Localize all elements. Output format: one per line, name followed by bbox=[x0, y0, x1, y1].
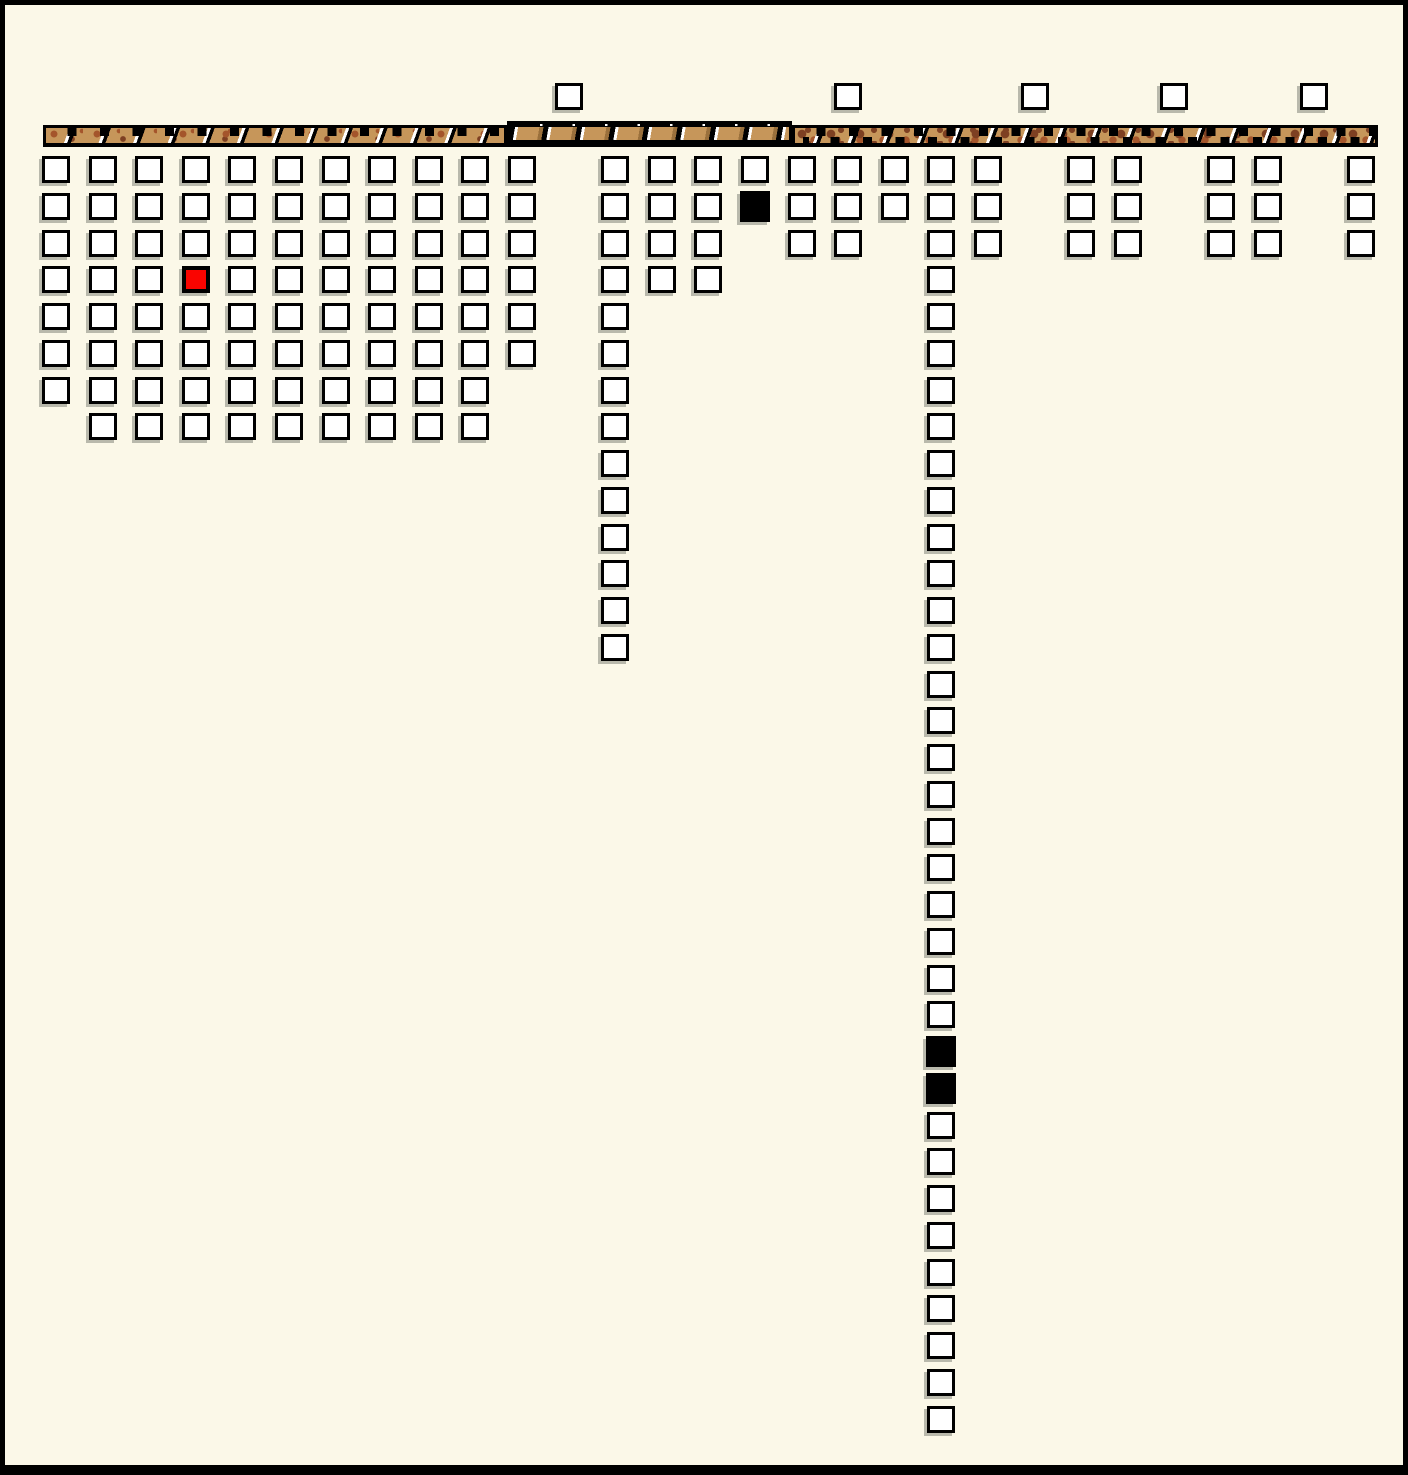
grid-square[interactable] bbox=[927, 744, 955, 771]
grid-square[interactable] bbox=[508, 193, 536, 220]
diagram-frame bbox=[0, 0, 1408, 1475]
grid-square[interactable] bbox=[927, 487, 955, 514]
beam-segment-right bbox=[792, 125, 1378, 147]
grid-square[interactable] bbox=[927, 266, 955, 293]
grid-square[interactable] bbox=[461, 413, 489, 440]
grid-square[interactable] bbox=[788, 193, 816, 220]
grid-square[interactable] bbox=[1254, 156, 1282, 183]
grid-square[interactable] bbox=[368, 156, 396, 183]
grid-square[interactable] bbox=[927, 377, 955, 404]
grid-square[interactable] bbox=[42, 193, 70, 220]
grid-square[interactable] bbox=[601, 450, 629, 477]
grid-square[interactable] bbox=[135, 303, 163, 330]
grid-square[interactable] bbox=[1207, 156, 1235, 183]
grid-square[interactable] bbox=[601, 524, 629, 551]
grid-square[interactable] bbox=[275, 193, 303, 220]
grid-square[interactable] bbox=[89, 193, 117, 220]
grid-square[interactable] bbox=[322, 413, 350, 440]
grid-square[interactable] bbox=[135, 230, 163, 257]
grid-square[interactable] bbox=[648, 230, 676, 257]
grid-square[interactable] bbox=[182, 340, 210, 367]
grid-square[interactable] bbox=[42, 230, 70, 257]
grid-square[interactable] bbox=[1207, 193, 1235, 220]
grid-square[interactable] bbox=[927, 671, 955, 698]
grid-square[interactable] bbox=[89, 266, 117, 293]
grid-square[interactable] bbox=[415, 377, 443, 404]
grid-square[interactable] bbox=[182, 193, 210, 220]
beam-tick-marks bbox=[510, 124, 789, 126]
grid-square[interactable] bbox=[89, 303, 117, 330]
red-square[interactable] bbox=[182, 266, 210, 293]
grid-square[interactable] bbox=[927, 230, 955, 257]
grid-square[interactable] bbox=[927, 1406, 955, 1433]
grid-square[interactable] bbox=[415, 193, 443, 220]
grid-square[interactable] bbox=[927, 781, 955, 808]
grid-square[interactable] bbox=[89, 340, 117, 367]
grid-square[interactable] bbox=[228, 156, 256, 183]
grid-square[interactable] bbox=[1254, 193, 1282, 220]
grid-square[interactable] bbox=[182, 303, 210, 330]
grid-square[interactable] bbox=[927, 891, 955, 918]
grid-square[interactable] bbox=[135, 266, 163, 293]
grid-square[interactable] bbox=[368, 230, 396, 257]
grid-square[interactable] bbox=[508, 156, 536, 183]
grid-square[interactable] bbox=[89, 413, 117, 440]
grid-square[interactable] bbox=[322, 156, 350, 183]
grid-square[interactable] bbox=[648, 266, 676, 293]
grid-square[interactable] bbox=[601, 597, 629, 624]
grid-square[interactable] bbox=[461, 266, 489, 293]
black-square[interactable] bbox=[926, 1036, 956, 1067]
grid-square[interactable] bbox=[461, 156, 489, 183]
grid-square[interactable] bbox=[461, 377, 489, 404]
grid-square[interactable] bbox=[1067, 230, 1095, 257]
grid-square[interactable] bbox=[1067, 193, 1095, 220]
diagram-canvas bbox=[5, 5, 1403, 1465]
grid-square[interactable] bbox=[1160, 83, 1188, 110]
grid-square[interactable] bbox=[834, 83, 862, 110]
grid-square[interactable] bbox=[135, 156, 163, 183]
grid-square[interactable] bbox=[881, 193, 909, 220]
beam-notch-pattern-bottom bbox=[795, 137, 1375, 143]
grid-square[interactable] bbox=[601, 303, 629, 330]
grid-square[interactable] bbox=[368, 413, 396, 440]
grid-square[interactable] bbox=[927, 303, 955, 330]
grid-square[interactable] bbox=[1114, 193, 1142, 220]
grid-square[interactable] bbox=[275, 340, 303, 367]
grid-square[interactable] bbox=[182, 413, 210, 440]
grid-square[interactable] bbox=[275, 266, 303, 293]
grid-square[interactable] bbox=[1067, 156, 1095, 183]
grid-square[interactable] bbox=[135, 413, 163, 440]
grid-square[interactable] bbox=[182, 230, 210, 257]
grid-square[interactable] bbox=[1254, 230, 1282, 257]
grid-square[interactable] bbox=[322, 230, 350, 257]
grid-square[interactable] bbox=[42, 377, 70, 404]
grid-square[interactable] bbox=[601, 230, 629, 257]
grid-square[interactable] bbox=[275, 377, 303, 404]
grid-square[interactable] bbox=[927, 707, 955, 734]
grid-square[interactable] bbox=[275, 303, 303, 330]
grid-square[interactable] bbox=[927, 597, 955, 624]
grid-square[interactable] bbox=[927, 413, 955, 440]
grid-square[interactable] bbox=[228, 377, 256, 404]
grid-square[interactable] bbox=[42, 303, 70, 330]
grid-square[interactable] bbox=[275, 230, 303, 257]
grid-square[interactable] bbox=[415, 413, 443, 440]
grid-square[interactable] bbox=[415, 230, 443, 257]
grid-square[interactable] bbox=[927, 1185, 955, 1212]
grid-square[interactable] bbox=[741, 156, 769, 183]
grid-square[interactable] bbox=[648, 193, 676, 220]
grid-square[interactable] bbox=[415, 303, 443, 330]
grid-square[interactable] bbox=[927, 450, 955, 477]
grid-square[interactable] bbox=[694, 193, 722, 220]
grid-square[interactable] bbox=[368, 193, 396, 220]
grid-square[interactable] bbox=[42, 266, 70, 293]
grid-square[interactable] bbox=[974, 193, 1002, 220]
grid-square[interactable] bbox=[648, 156, 676, 183]
grid-square[interactable] bbox=[228, 193, 256, 220]
grid-square[interactable] bbox=[228, 340, 256, 367]
grid-square[interactable] bbox=[89, 377, 117, 404]
beam-segment-middle bbox=[507, 121, 792, 147]
grid-square[interactable] bbox=[974, 156, 1002, 183]
grid-square[interactable] bbox=[927, 156, 955, 183]
grid-square[interactable] bbox=[135, 377, 163, 404]
grid-square[interactable] bbox=[601, 487, 629, 514]
grid-square[interactable] bbox=[322, 303, 350, 330]
grid-square[interactable] bbox=[1300, 83, 1328, 110]
grid-square[interactable] bbox=[601, 413, 629, 440]
grid-square[interactable] bbox=[182, 156, 210, 183]
grid-square[interactable] bbox=[927, 1222, 955, 1249]
grid-square[interactable] bbox=[788, 230, 816, 257]
grid-square[interactable] bbox=[927, 854, 955, 881]
grid-square[interactable] bbox=[228, 303, 256, 330]
grid-square[interactable] bbox=[275, 413, 303, 440]
grid-square[interactable] bbox=[368, 303, 396, 330]
grid-square[interactable] bbox=[182, 377, 210, 404]
grid-square[interactable] bbox=[415, 266, 443, 293]
grid-square[interactable] bbox=[1347, 156, 1375, 183]
grid-square[interactable] bbox=[834, 230, 862, 257]
beam-plank-pattern bbox=[510, 127, 789, 140]
grid-square[interactable] bbox=[927, 1001, 955, 1028]
beam-notch-pattern bbox=[46, 128, 504, 136]
grid-square[interactable] bbox=[461, 193, 489, 220]
grid-square[interactable] bbox=[1114, 156, 1142, 183]
grid-square[interactable] bbox=[601, 340, 629, 367]
grid-square[interactable] bbox=[1021, 83, 1049, 110]
grid-square[interactable] bbox=[89, 230, 117, 257]
grid-square[interactable] bbox=[1114, 230, 1142, 257]
grid-square[interactable] bbox=[368, 266, 396, 293]
grid-square[interactable] bbox=[601, 266, 629, 293]
grid-square[interactable] bbox=[322, 193, 350, 220]
grid-square[interactable] bbox=[927, 1332, 955, 1359]
grid-square[interactable] bbox=[601, 377, 629, 404]
grid-square[interactable] bbox=[927, 1148, 955, 1175]
grid-square[interactable] bbox=[927, 1259, 955, 1286]
grid-square[interactable] bbox=[788, 156, 816, 183]
grid-square[interactable] bbox=[461, 230, 489, 257]
black-square[interactable] bbox=[926, 1073, 956, 1104]
grid-square[interactable] bbox=[927, 928, 955, 955]
beam-segment-left bbox=[43, 125, 507, 147]
grid-square[interactable] bbox=[368, 340, 396, 367]
grid-square[interactable] bbox=[1347, 193, 1375, 220]
grid-square[interactable] bbox=[368, 377, 396, 404]
grid-square[interactable] bbox=[694, 266, 722, 293]
grid-square[interactable] bbox=[461, 340, 489, 367]
grid-square[interactable] bbox=[927, 1295, 955, 1322]
grid-square[interactable] bbox=[42, 156, 70, 183]
grid-square[interactable] bbox=[601, 634, 629, 661]
grid-square[interactable] bbox=[555, 83, 583, 110]
grid-square[interactable] bbox=[508, 266, 536, 293]
grid-square[interactable] bbox=[601, 156, 629, 183]
grid-square[interactable] bbox=[601, 560, 629, 587]
grid-square[interactable] bbox=[834, 193, 862, 220]
grid-square[interactable] bbox=[927, 560, 955, 587]
grid-square[interactable] bbox=[834, 156, 862, 183]
grid-square[interactable] bbox=[415, 156, 443, 183]
black-square[interactable] bbox=[740, 191, 770, 222]
grid-square[interactable] bbox=[135, 340, 163, 367]
grid-square[interactable] bbox=[135, 193, 163, 220]
grid-square[interactable] bbox=[1347, 230, 1375, 257]
grid-square[interactable] bbox=[927, 340, 955, 367]
grid-square[interactable] bbox=[694, 230, 722, 257]
grid-square[interactable] bbox=[508, 340, 536, 367]
grid-square[interactable] bbox=[1207, 230, 1235, 257]
grid-square[interactable] bbox=[461, 303, 489, 330]
grid-square[interactable] bbox=[927, 193, 955, 220]
grid-square[interactable] bbox=[694, 156, 722, 183]
grid-square[interactable] bbox=[415, 340, 443, 367]
grid-square[interactable] bbox=[275, 156, 303, 183]
grid-square[interactable] bbox=[228, 413, 256, 440]
grid-square[interactable] bbox=[927, 634, 955, 661]
grid-square[interactable] bbox=[927, 818, 955, 845]
grid-square[interactable] bbox=[927, 1112, 955, 1139]
grid-square[interactable] bbox=[89, 156, 117, 183]
grid-square[interactable] bbox=[508, 230, 536, 257]
grid-square[interactable] bbox=[601, 193, 629, 220]
grid-square[interactable] bbox=[42, 340, 70, 367]
grid-square[interactable] bbox=[322, 340, 350, 367]
grid-square[interactable] bbox=[927, 1369, 955, 1396]
grid-square[interactable] bbox=[881, 156, 909, 183]
grid-square[interactable] bbox=[228, 230, 256, 257]
grid-square[interactable] bbox=[322, 377, 350, 404]
grid-square[interactable] bbox=[974, 230, 1002, 257]
grid-square[interactable] bbox=[322, 266, 350, 293]
grid-square[interactable] bbox=[927, 965, 955, 992]
grid-square[interactable] bbox=[508, 303, 536, 330]
beam-notch-pattern bbox=[795, 128, 1375, 136]
grid-square[interactable] bbox=[927, 524, 955, 551]
grid-square[interactable] bbox=[228, 266, 256, 293]
